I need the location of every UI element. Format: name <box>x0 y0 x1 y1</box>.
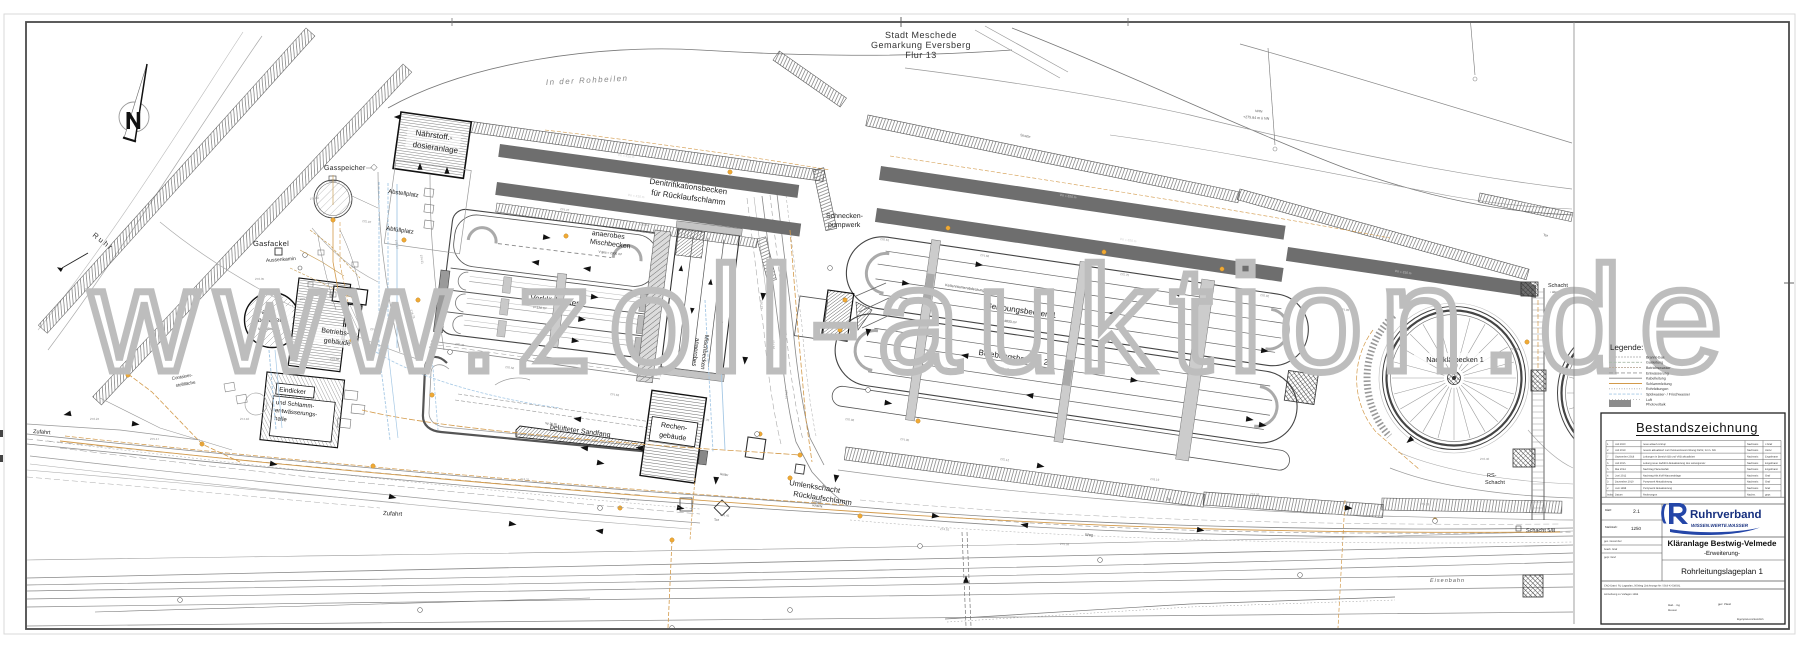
svg-text:neuere aktualisiert zum flurst: neuere aktualisiert zum flurstuecksveror… <box>1643 449 1716 452</box>
svg-text:Maß. - Ing: Maß. - Ing <box>1668 604 1680 607</box>
svg-text:Pumpwerk Aktualisierung: Pumpwerk Aktualisierung <box>1643 481 1673 484</box>
svg-text:Nachweis: Nachweis <box>1747 474 1759 477</box>
svg-text:gepr.: gepr. <box>1765 493 1771 496</box>
svg-text:Gasleitung: Gasleitung <box>1646 361 1663 365</box>
svg-text:Betriebswasser: Betriebswasser <box>1646 366 1671 370</box>
svg-text:Eisenbahn: Eisenbahn <box>1430 578 1465 584</box>
svg-text:Juli 2015: Juli 2015 <box>1615 462 1626 465</box>
svg-text:gepr. Graf: gepr. Graf <box>1604 556 1616 559</box>
svg-text:Gemarkung Eversberg: Gemarkung Eversberg <box>871 40 971 50</box>
svg-text:Nachweis: Nachweis <box>1747 443 1759 446</box>
svg-text:Dezember 2010: Dezember 2010 <box>1615 481 1634 484</box>
svg-text:Nachweis: Nachweis <box>1747 481 1759 484</box>
svg-text:-Erweiterung-: -Erweiterung- <box>1704 550 1740 557</box>
svg-text:Juli 2020: Juli 2020 <box>1615 443 1626 446</box>
svg-text:WISSEN.WERTE.WASSER: WISSEN.WERTE.WASSER <box>1691 523 1749 528</box>
svg-text:Juni 1998: Juni 1998 <box>1615 487 1627 490</box>
svg-text:274.31: 274.31 <box>520 477 530 482</box>
svg-text:pumpwerk: pumpwerk <box>828 221 861 229</box>
svg-text:Anmerkung zu Vorlagen 1994: Anmerkung zu Vorlagen 1994 <box>1604 593 1639 596</box>
svg-text:Graf: Graf <box>1765 474 1770 477</box>
svg-text:Legende:: Legende: <box>1610 343 1643 352</box>
svg-text:Ruhrverband: Ruhrverband <box>1690 509 1762 521</box>
svg-text:Luft: Luft <box>1646 398 1652 402</box>
svg-text:Maßstab:: Maßstab: <box>1605 525 1618 529</box>
svg-text:Schacht 5/8: Schacht 5/8 <box>1526 528 1555 534</box>
svg-text:neue anlauf zentrup: neue anlauf zentrup <box>1643 443 1666 446</box>
svg-text:Graf: Graf <box>1765 487 1770 490</box>
svg-text:Nachweis: Nachweis <box>1747 456 1759 459</box>
svg-text:Tor: Tor <box>714 518 720 522</box>
svg-text:Nachw.: Nachw. <box>1747 493 1756 496</box>
svg-text:Nachtrag Abt.4/off Wasserablag: Nachtrag Abt.4/off Wasserablage <box>1643 474 1681 477</box>
svg-text:275.38: 275.38 <box>620 497 630 502</box>
svg-text:Schacht: Schacht <box>1485 480 1505 486</box>
svg-text:Datum: Datum <box>1615 493 1623 496</box>
svg-text:274.52: 274.52 <box>940 527 950 531</box>
svg-text:276.40: 276.40 <box>1480 457 1490 461</box>
svg-text:Nachtrag Planunterlab: Nachtrag Planunterlab <box>1643 468 1669 471</box>
svg-text:Flur 13: Flur 13 <box>905 50 937 60</box>
svg-text:Zufahrt: Zufahrt <box>383 510 403 518</box>
svg-text:Engelmann: Engelmann <box>1765 468 1779 471</box>
svg-text:RS-: RS- <box>1487 473 1497 479</box>
svg-text:Änderungen: Änderungen <box>1643 492 1658 496</box>
svg-text:September 2018: September 2018 <box>1615 456 1635 459</box>
svg-text:Index: Index <box>1607 493 1614 496</box>
svg-text:Entwässerung: Entwässerung <box>1646 371 1669 375</box>
svg-text:Blatt:: Blatt: <box>1605 508 1612 512</box>
svg-text:Photovoltaik: Photovoltaik <box>1646 403 1666 407</box>
svg-text:Nachweis: Nachweis <box>1747 468 1759 471</box>
svg-text:Leitungen in Bereich BB und VK: Leitungen in Bereich BB und VKB aktualis… <box>1643 456 1695 459</box>
svg-text:Rohrleitungslageplan 1: Rohrleitungslageplan 1 <box>1681 567 1763 576</box>
svg-text:Brannt-Gas: Brannt-Gas <box>1646 355 1665 359</box>
svg-text:Graf: Graf <box>1765 481 1770 484</box>
svg-text:Leitung neue Za/NKm Aktualis: Leitung neue Za/NKm Aktualisierung des L… <box>1643 462 1706 465</box>
svg-text:276.45: 276.45 <box>720 513 730 518</box>
svg-text:Stadt Meschede: Stadt Meschede <box>885 30 957 40</box>
svg-text:NHN: NHN <box>1255 109 1263 114</box>
svg-text:Nachweis: Nachweis <box>1747 462 1759 465</box>
svg-text:Schlammleitung: Schlammleitung <box>1646 382 1672 386</box>
svg-text:275.33: 275.33 <box>1420 502 1430 506</box>
svg-text:Juli 2019: Juli 2019 <box>1615 449 1626 452</box>
svg-text:Spülwasser- / Frischwasser: Spülwasser- / Frischwasser <box>1646 393 1691 397</box>
svg-text:Eigenplanverantwortlich: Eigenplanverantwortlich <box>1737 618 1764 621</box>
svg-text:gez. Plaun: gez. Plaun <box>1718 602 1732 606</box>
svg-text:274.10: 274.10 <box>240 417 250 421</box>
svg-text:275.17: 275.17 <box>150 437 160 441</box>
svg-text:Engelmann: Engelmann <box>1765 456 1779 459</box>
svg-text:276.66: 276.66 <box>330 357 340 361</box>
svg-text:Juni 2012: Juni 2012 <box>1615 474 1627 477</box>
svg-text:Schnecken-: Schnecken- <box>826 212 864 220</box>
svg-text:gez. Dezember: gez. Dezember <box>1604 540 1622 543</box>
svg-text:2.1: 2.1 <box>1633 509 1640 515</box>
svg-text:Bestandszeichnung: Bestandszeichnung <box>1636 420 1758 435</box>
svg-text:Heinz: Heinz <box>1765 449 1772 452</box>
svg-text:Nachweis: Nachweis <box>1747 449 1759 452</box>
svg-text:Zufahrt: Zufahrt <box>33 429 51 436</box>
svg-text:bearb. Graf: bearb. Graf <box>1604 548 1617 551</box>
svg-text:Pumpwerk Aktualisierung: Pumpwerk Aktualisierung <box>1643 487 1673 490</box>
svg-text:276.24: 276.24 <box>90 417 100 421</box>
svg-text:274.26: 274.26 <box>1250 492 1260 497</box>
svg-text:1250: 1250 <box>1631 526 1642 531</box>
svg-text:Rohrleitungen: Rohrleitungen <box>1646 387 1668 391</box>
svg-text:CAD-Datei: RL-Lageplan_500dwg: CAD-Datei: RL-Lageplan_500dwg Zeichnungs… <box>1604 585 1681 588</box>
svg-text:Messen: Messen <box>1668 609 1678 612</box>
svg-text:Engelmann: Engelmann <box>1765 462 1779 465</box>
svg-text:Kabelleitung: Kabelleitung <box>1646 377 1666 381</box>
svg-text:Kläranlage Bestwig-Velmede: Kläranlage Bestwig-Velmede <box>1668 539 1777 548</box>
svg-text:Nachweis: Nachweis <box>1747 487 1759 490</box>
svg-text:Weg: Weg <box>1085 532 1093 537</box>
svg-text:Mai 2014: Mai 2014 <box>1615 468 1626 471</box>
svg-text:J.Graf: J.Graf <box>1765 443 1772 446</box>
svg-text:Gasspeicher: Gasspeicher <box>324 164 366 172</box>
svg-text:275.59: 275.59 <box>1060 542 1070 546</box>
